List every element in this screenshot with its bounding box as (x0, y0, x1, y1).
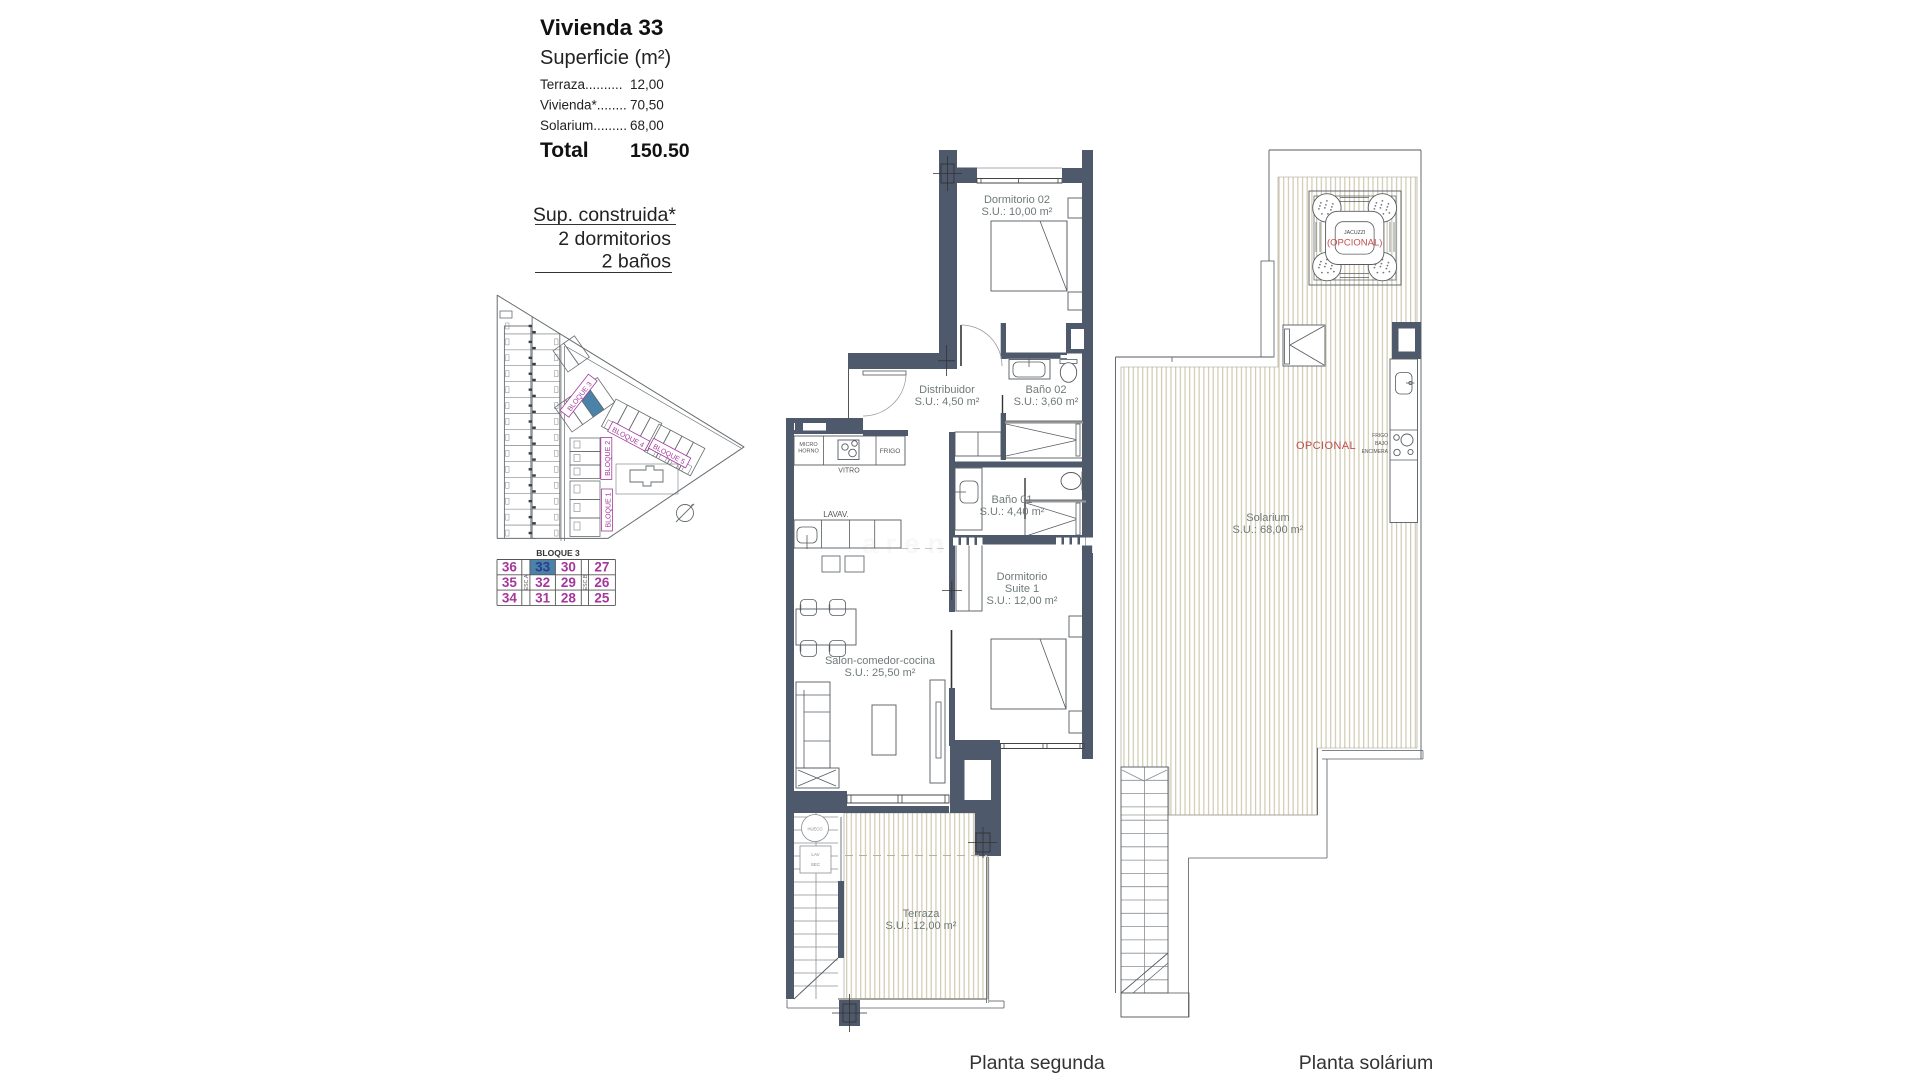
svg-text:12,00: 12,00 (630, 77, 664, 92)
svg-text:Distribuidor: Distribuidor (919, 384, 975, 396)
svg-text:Baño 02: Baño 02 (1026, 384, 1067, 396)
svg-text:Suite 1: Suite 1 (1005, 583, 1039, 595)
svg-text:27: 27 (594, 560, 609, 575)
svg-text:25: 25 (594, 590, 610, 605)
svg-text:Terraza: Terraza (903, 908, 941, 920)
svg-text:ESC.B: ESC.B (583, 574, 589, 590)
svg-text:(OPCIONAL): (OPCIONAL) (1327, 238, 1382, 249)
svg-text:m: m (1090, 527, 1117, 560)
svg-text:Vivienda*........: Vivienda*........ (540, 98, 627, 113)
svg-text:68,00: 68,00 (630, 118, 664, 133)
svg-text:FRIGO: FRIGO (1372, 433, 1388, 439)
svg-text:S.U.: 25,50 m²: S.U.: 25,50 m² (845, 667, 916, 679)
svg-text:Terraza..........: Terraza.......... (540, 77, 623, 92)
svg-text:S.U.: 68,00 m²: S.U.: 68,00 m² (1233, 524, 1304, 536)
svg-text:31: 31 (535, 590, 551, 605)
svg-text:ENCIMERA: ENCIMERA (1362, 449, 1389, 455)
svg-text:JACUZZI: JACUZZI (1344, 230, 1365, 236)
svg-text:S.U.: 12,00 m²: S.U.: 12,00 m² (987, 595, 1058, 607)
svg-text:Total: Total (540, 139, 589, 162)
svg-text:VITRO: VITRO (838, 468, 860, 475)
svg-text:Planta segunda: Planta segunda (969, 1052, 1105, 1074)
svg-text:S.U.: 4,50 m²: S.U.: 4,50 m² (915, 396, 980, 408)
svg-text:MICRO: MICRO (799, 442, 818, 448)
svg-text:FRIGO: FRIGO (880, 448, 901, 455)
svg-text:Superficie (m²): Superficie (m²) (540, 47, 671, 69)
svg-text:SEC: SEC (811, 862, 821, 867)
svg-text:BLOQUE 3: BLOQUE 3 (536, 548, 580, 558)
svg-text:HORNO: HORNO (798, 449, 819, 455)
svg-text:33: 33 (535, 560, 551, 575)
svg-text:Planta solárium: Planta solárium (1299, 1052, 1433, 1074)
svg-text:29: 29 (561, 575, 576, 590)
svg-text:28: 28 (561, 590, 577, 605)
svg-text:Salon-comedor-cocina: Salon-comedor-cocina (825, 655, 936, 667)
svg-text:36: 36 (502, 560, 518, 575)
svg-text:S.U.: 3,60 m²: S.U.: 3,60 m² (1014, 396, 1079, 408)
svg-text:Baño 01: Baño 01 (992, 494, 1033, 506)
svg-text:32: 32 (535, 575, 550, 590)
svg-text:35: 35 (502, 575, 518, 590)
svg-text:BLOQUE 1: BLOQUE 1 (605, 492, 612, 527)
svg-text:70,50: 70,50 (630, 98, 664, 113)
svg-text:Dormitorio 02: Dormitorio 02 (984, 194, 1050, 206)
svg-text:Vivienda 33: Vivienda 33 (540, 15, 663, 40)
svg-text:BAJO: BAJO (1375, 441, 1388, 447)
svg-text:2 baños: 2 baños (602, 251, 672, 273)
svg-text:S.U.: 4,40 m²: S.U.: 4,40 m² (980, 506, 1045, 518)
svg-text:ESC.A: ESC.A (524, 574, 530, 590)
svg-text:BLOQUE 2: BLOQUE 2 (605, 441, 612, 476)
svg-text:34: 34 (502, 590, 518, 605)
svg-text:2 dormitorios: 2 dormitorios (558, 228, 671, 250)
svg-text:LAV: LAV (811, 852, 819, 857)
svg-text:Dormitorio: Dormitorio (997, 571, 1048, 583)
svg-text:26: 26 (594, 575, 610, 590)
svg-text:150.50: 150.50 (630, 140, 690, 162)
svg-text:HUECO: HUECO (807, 827, 823, 832)
svg-text:S.U.: 10,00 m²: S.U.: 10,00 m² (982, 206, 1053, 218)
svg-text:LAVAV.: LAVAV. (823, 510, 849, 519)
svg-text:Sup. construida*: Sup. construida* (533, 204, 677, 226)
svg-text:OPCIONAL: OPCIONAL (1296, 440, 1356, 452)
svg-text:S.U.: 12,00 m²: S.U.: 12,00 m² (886, 920, 957, 932)
svg-text:Solarium.........: Solarium......... (540, 118, 627, 133)
svg-text:30: 30 (561, 560, 576, 575)
svg-text:Solarium: Solarium (1246, 512, 1289, 524)
svg-text:a r e n: a r e n (862, 528, 944, 559)
